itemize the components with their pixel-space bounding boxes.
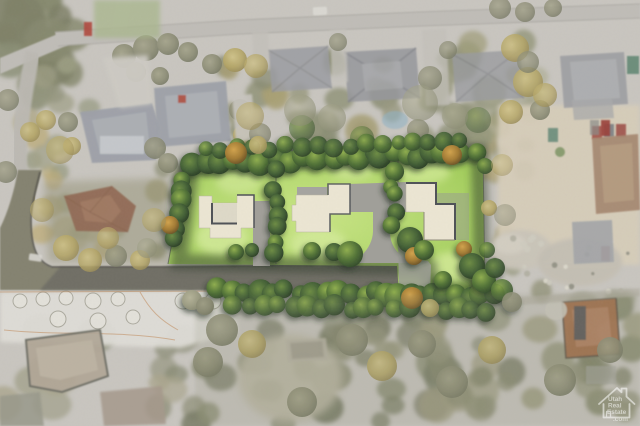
- svg-text:.com: .com: [613, 416, 628, 423]
- svg-text:Estate: Estate: [607, 409, 627, 416]
